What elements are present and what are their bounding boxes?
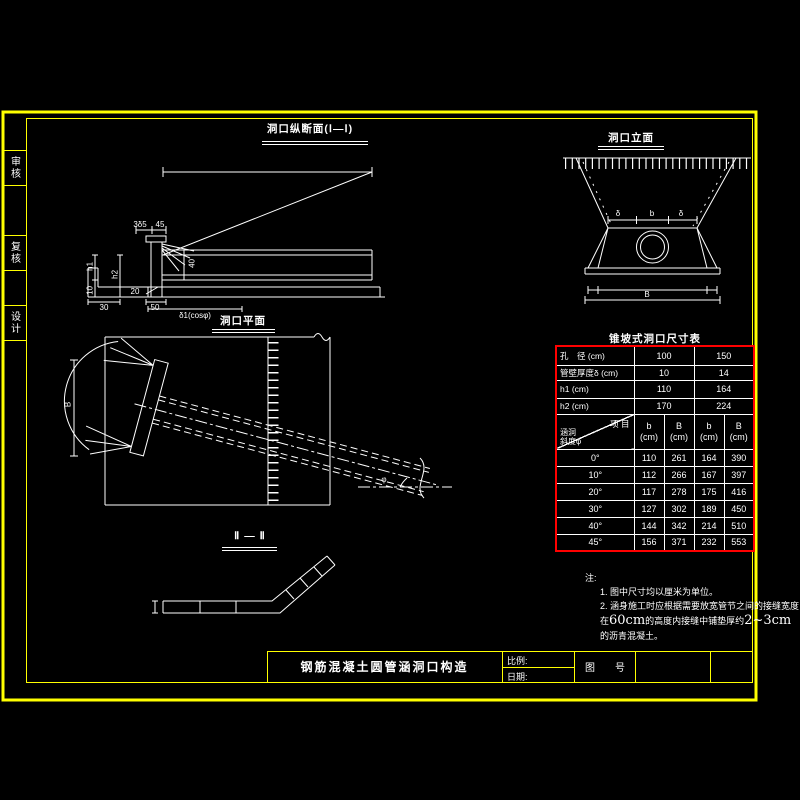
- dim-label: 45: [152, 221, 168, 230]
- skew-angle-arc: [400, 478, 407, 487]
- scale-label: 比例:: [507, 654, 528, 667]
- table-cell: 110: [634, 449, 664, 466]
- table-cell: 302: [664, 500, 694, 517]
- section-ii-drawing: [152, 556, 335, 613]
- dim-label: b: [645, 210, 659, 219]
- table-cell: 156: [634, 534, 664, 551]
- sidebar-cell-designer: 设计: [4, 305, 24, 340]
- table-row: 20° 117 278 175 416: [556, 483, 754, 500]
- table-cell: 224: [694, 398, 754, 414]
- table-cell: 30°: [556, 500, 634, 517]
- table-cell: 100: [634, 346, 694, 365]
- table-cell: 167: [694, 466, 724, 483]
- top-dimension-line: [163, 167, 372, 177]
- table-cell: h1 (cm): [556, 380, 634, 398]
- table-cell: 371: [664, 534, 694, 551]
- outlet-dimension-table: 孔 径 (cm) 100 150 管壁厚度δ (cm) 10 14 h1 (cm…: [555, 345, 755, 552]
- table-cell: 390: [724, 449, 754, 466]
- table-cell: 127: [634, 500, 664, 517]
- note-item-2-continued: 在60cm的高度内接缝中铺垫厚约2~3cm: [600, 613, 791, 629]
- table-title: 锥坡式洞口尺寸表: [555, 331, 755, 346]
- table-row: 管壁厚度δ (cm) 10 14: [556, 365, 754, 380]
- dim-label: h1: [87, 259, 96, 273]
- table-cell: b(cm): [694, 414, 724, 449]
- table-cell: 553: [724, 534, 754, 551]
- dim-label: 30: [96, 304, 112, 313]
- plan-drawing: [51, 328, 453, 543]
- skewed-pipe: [51, 328, 453, 543]
- table-cell: 孔 径 (cm): [556, 346, 634, 365]
- table-row: 30° 127 302 189 450: [556, 500, 754, 517]
- dim-label: B: [65, 397, 74, 411]
- table-cell: 112: [634, 466, 664, 483]
- date-label: 日期:: [507, 670, 528, 683]
- dim-label: B: [640, 291, 654, 300]
- dim-label: δ: [674, 210, 688, 219]
- table-cell: 164: [694, 380, 754, 398]
- dim-label: δ1(cosφ): [164, 312, 226, 321]
- table-cell: b(cm): [634, 414, 664, 449]
- notes-label: 注:: [585, 573, 597, 584]
- dim-label: h2: [112, 267, 121, 281]
- sidebar-cell-reviewer: 审核: [4, 150, 24, 185]
- table-cell: 164: [694, 449, 724, 466]
- note-item-2-end: 的沥青混凝土。: [600, 631, 663, 642]
- elevation-title: 洞口立面: [596, 130, 666, 145]
- table-cell: 189: [694, 500, 724, 517]
- table-cell: 14: [694, 365, 754, 380]
- apron-slab: [163, 556, 335, 613]
- table-cell: 170: [634, 398, 694, 414]
- table-row: 45° 156 371 232 553: [556, 534, 754, 551]
- table-cell: B(cm): [724, 414, 754, 449]
- table-row: 40° 144 342 214 510: [556, 517, 754, 534]
- dim-label: 10: [87, 283, 96, 297]
- longitudinal-section-title: 洞口纵断面(Ⅰ—Ⅰ): [245, 121, 375, 136]
- pipe-opening-outer: [637, 231, 669, 263]
- dim-label: δ: [611, 210, 625, 219]
- table-cell: 342: [664, 517, 694, 534]
- table-row: 10° 112 266 167 397: [556, 466, 754, 483]
- cone-arc-plan: [52, 332, 118, 450]
- table-cell: 144: [634, 517, 664, 534]
- dimension-lines: [152, 601, 158, 613]
- elevation-drawing: [563, 158, 751, 304]
- table-cell: 266: [664, 466, 694, 483]
- table-cell: h2 (cm): [556, 398, 634, 414]
- table-cell: 45°: [556, 534, 634, 551]
- table-cell: 450: [724, 500, 754, 517]
- table-cell: 175: [694, 483, 724, 500]
- table-cell: 397: [724, 466, 754, 483]
- table-cell: 510: [724, 517, 754, 534]
- table-cell: 20°: [556, 483, 634, 500]
- table-cell: 10: [634, 365, 694, 380]
- table-cell: 214: [694, 517, 724, 534]
- table-cell: 150: [694, 346, 754, 365]
- dim-label: 20: [128, 288, 142, 297]
- skew-angle-label: φ: [378, 476, 390, 485]
- diagonal-header-bottom: 涵洞斜度φ: [560, 428, 581, 446]
- slab-joints: [200, 567, 322, 613]
- section-ii-title: Ⅱ — Ⅱ: [220, 530, 280, 542]
- table-cell: 278: [664, 483, 694, 500]
- table-cell: 110: [634, 380, 694, 398]
- drawing-main-title: 钢筋混凝土圆管涵洞口构造: [267, 651, 502, 682]
- table-row: 0° 110 261 164 390: [556, 449, 754, 466]
- table-cell: 117: [634, 483, 664, 500]
- sidebar-cell-checker: 复核: [4, 235, 24, 270]
- table-header-row: 项 目 涵洞斜度φ b(cm) B(cm) b(cm) B(cm): [556, 414, 754, 449]
- table-cell: 管壁厚度δ (cm): [556, 365, 634, 380]
- table-cell: B(cm): [664, 414, 694, 449]
- dim-label: 50: [147, 304, 163, 313]
- table-cell: 10°: [556, 466, 634, 483]
- drawing-sheet: 审核 复核 设计 洞口纵断面(Ⅰ—Ⅰ) 洞口立面 洞口平面 Ⅱ — Ⅱ 3δ5 …: [0, 0, 800, 800]
- drawing-number-label: 图 号: [575, 651, 635, 682]
- table-cell: 0°: [556, 449, 634, 466]
- table-cell: 40°: [556, 517, 634, 534]
- pipe-centerline: [135, 404, 438, 485]
- table-row: 孔 径 (cm) 100 150: [556, 346, 754, 365]
- pipe-opening-inner: [641, 235, 665, 259]
- slope-line: [163, 172, 372, 255]
- table-cell: 416: [724, 483, 754, 500]
- note-item-1: 1. 图中尺寸均以厘米为单位。: [600, 587, 718, 598]
- dim-label: 40: [189, 256, 198, 270]
- table-cell: 232: [694, 534, 724, 551]
- table-row: h1 (cm) 110 164: [556, 380, 754, 398]
- table-cell: 261: [664, 449, 694, 466]
- dim-label: 3δ5: [130, 221, 150, 230]
- note-item-2: 2. 涵身施工时应根据需要放宽管节之间的接缝宽度，即: [600, 601, 800, 612]
- diagonal-header-cell: 项 目 涵洞斜度φ: [556, 414, 634, 449]
- table-row: h2 (cm) 170 224: [556, 398, 754, 414]
- diagonal-header-top: 项 目: [610, 418, 629, 430]
